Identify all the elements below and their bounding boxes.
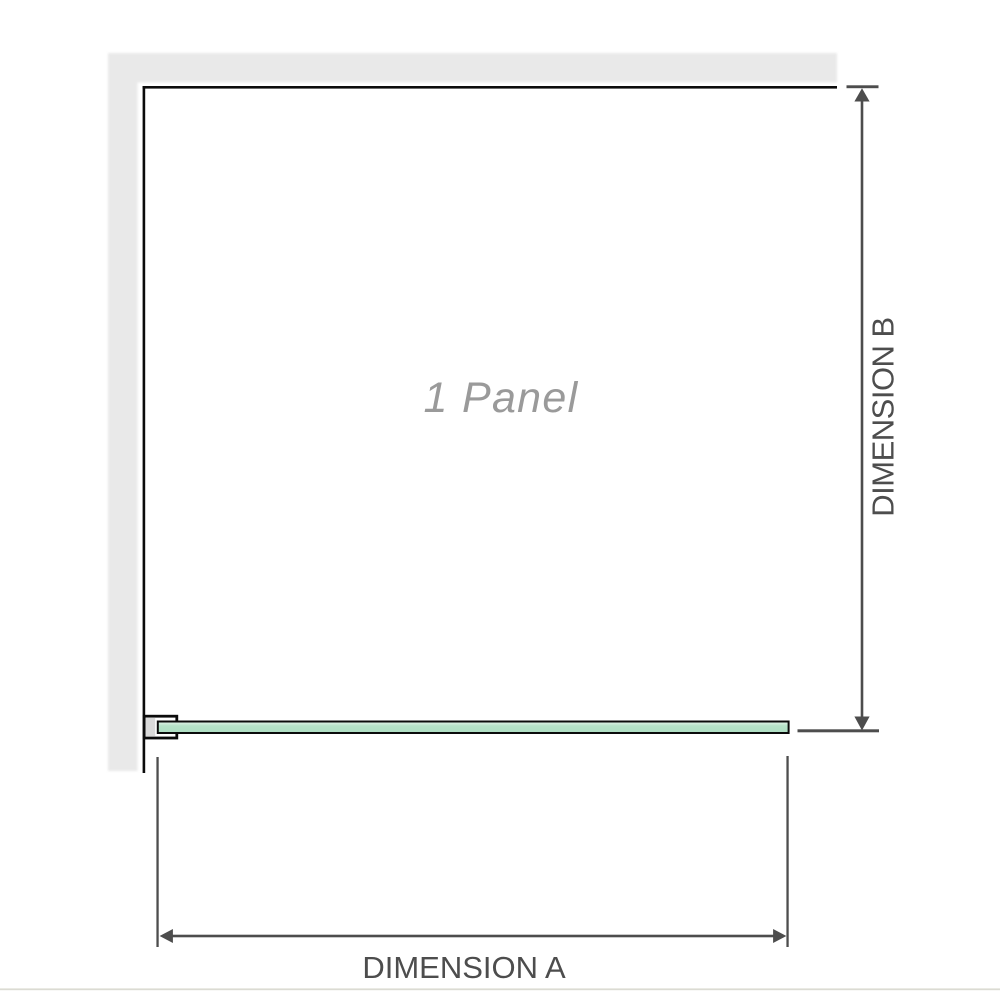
svg-text:DIMENSION B: DIMENSION B: [866, 317, 901, 516]
svg-text:DIMENSION A: DIMENSION A: [362, 950, 566, 985]
svg-text:1 Panel: 1 Panel: [424, 374, 579, 422]
